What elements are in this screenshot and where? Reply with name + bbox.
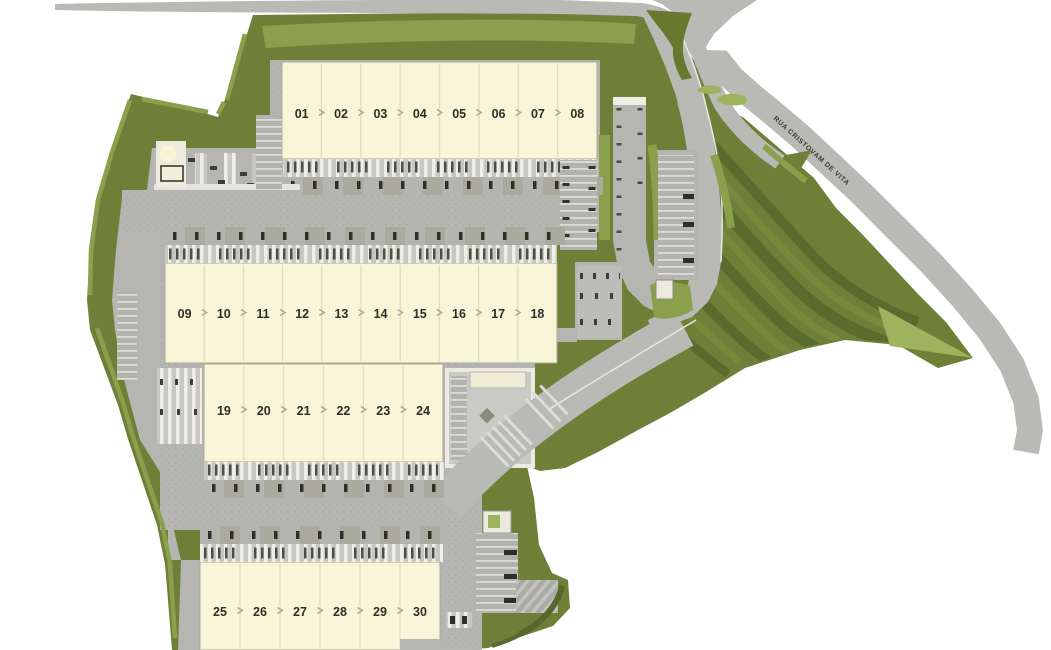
svg-text:08: 08 (570, 107, 584, 121)
svg-text:13: 13 (334, 307, 348, 321)
svg-text:27: 27 (293, 605, 307, 619)
svg-text:28: 28 (333, 605, 347, 619)
svg-text:19: 19 (217, 404, 231, 418)
svg-text:24: 24 (416, 404, 430, 418)
svg-text:02: 02 (334, 107, 348, 121)
svg-text:16: 16 (452, 307, 466, 321)
svg-text:14: 14 (374, 307, 388, 321)
svg-text:30: 30 (413, 605, 427, 619)
svg-text:06: 06 (492, 107, 506, 121)
svg-text:18: 18 (530, 307, 544, 321)
svg-text:04: 04 (413, 107, 427, 121)
svg-text:17: 17 (491, 307, 505, 321)
svg-text:05: 05 (452, 107, 466, 121)
svg-text:20: 20 (257, 404, 271, 418)
svg-text:07: 07 (531, 107, 545, 121)
svg-text:12: 12 (295, 307, 309, 321)
svg-text:26: 26 (253, 605, 267, 619)
svg-text:22: 22 (336, 404, 350, 418)
svg-text:03: 03 (373, 107, 387, 121)
svg-text:10: 10 (217, 307, 231, 321)
svg-text:23: 23 (376, 404, 390, 418)
svg-text:01: 01 (295, 107, 309, 121)
svg-text:15: 15 (413, 307, 427, 321)
svg-text:21: 21 (297, 404, 311, 418)
svg-text:25: 25 (213, 605, 227, 619)
svg-text:11: 11 (256, 307, 269, 321)
svg-text:29: 29 (373, 605, 387, 619)
svg-text:09: 09 (178, 307, 192, 321)
